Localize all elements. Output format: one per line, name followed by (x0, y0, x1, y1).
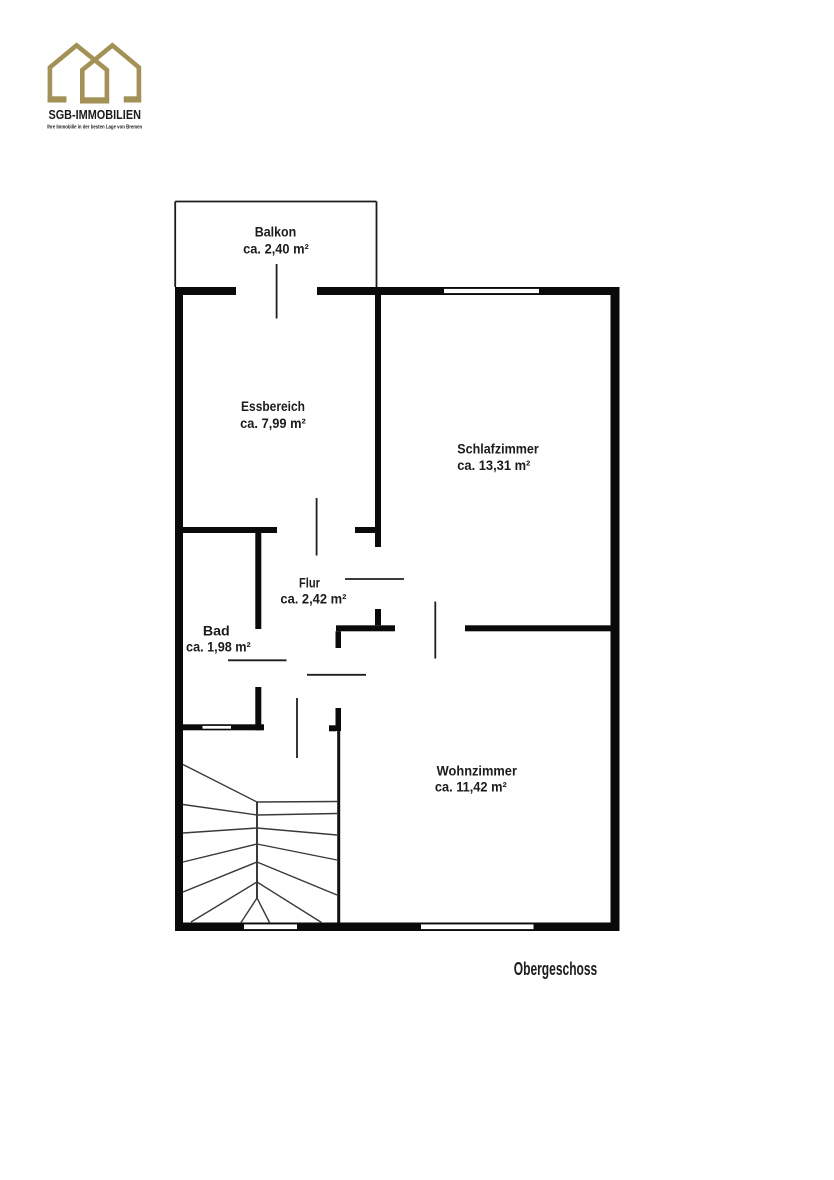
svg-text:ca. 2,42 m²: ca. 2,42 m² (280, 591, 346, 607)
svg-text:ca. 2,40 m²: ca. 2,40 m² (243, 241, 309, 257)
svg-text:ca. 13,31 m²: ca. 13,31 m² (457, 457, 530, 473)
svg-text:Obergeschoss: Obergeschoss (514, 958, 598, 979)
svg-text:Schlafzimmer: Schlafzimmer (457, 440, 539, 456)
svg-text:Flur: Flur (299, 575, 320, 591)
svg-text:Ihre Immobilie in der besten L: Ihre Immobilie in der besten Lage von Br… (47, 124, 142, 130)
svg-text:SGB-IMMOBILIEN: SGB-IMMOBILIEN (48, 108, 141, 122)
svg-text:ca. 7,99 m²: ca. 7,99 m² (240, 415, 306, 431)
svg-text:Essbereich: Essbereich (241, 398, 305, 414)
svg-text:ca. 1,98 m²: ca. 1,98 m² (186, 639, 251, 655)
svg-text:ca. 11,42 m²: ca. 11,42 m² (435, 778, 507, 794)
svg-text:Balkon: Balkon (255, 223, 297, 239)
svg-text:Bad: Bad (203, 623, 230, 639)
svg-text:Wohnzimmer: Wohnzimmer (437, 763, 518, 779)
